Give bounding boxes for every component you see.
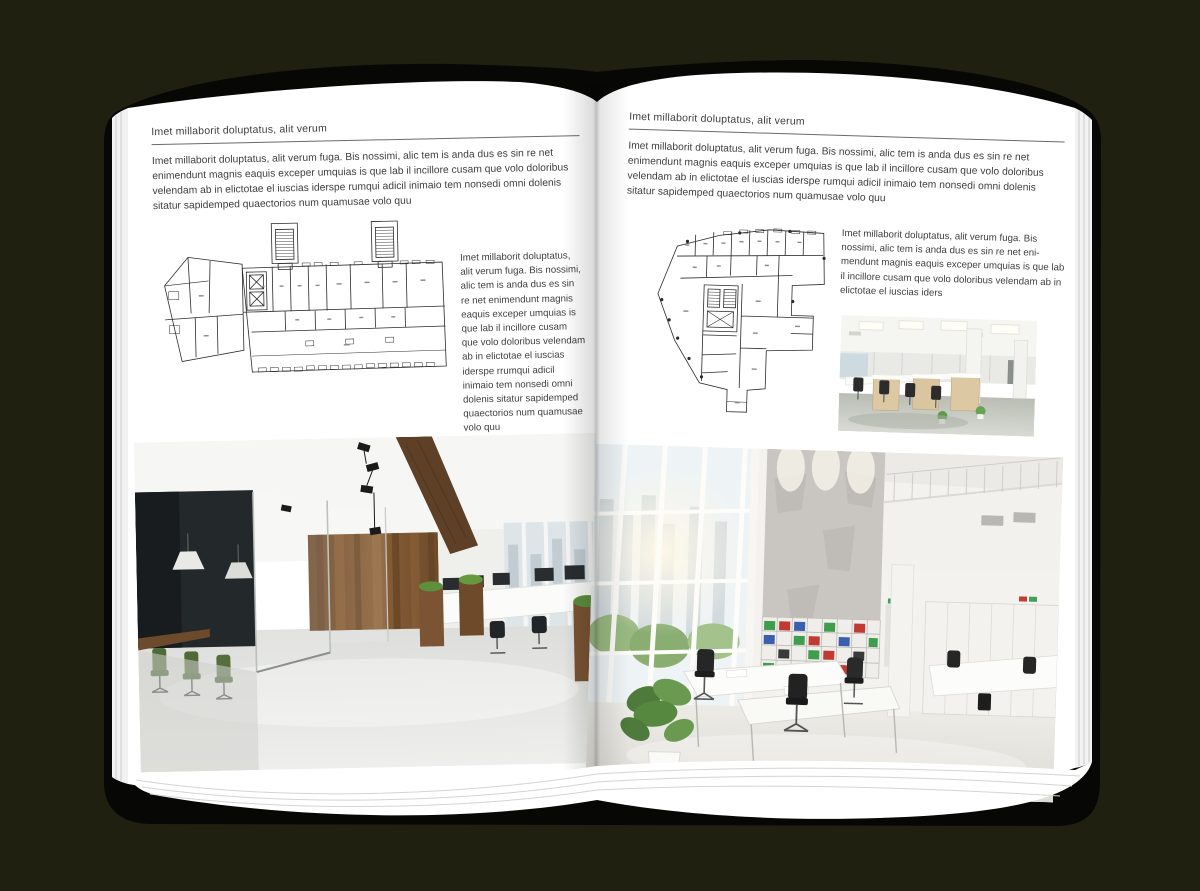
white-loft-office-illustration (585, 444, 1063, 803)
magazine-spread-mockup: Imet millaborit doluptatus, alit verum I… (0, 0, 1200, 891)
right-small-office-photo (838, 315, 1037, 437)
plan-label-marks (681, 238, 803, 405)
plan-label-marks (199, 279, 427, 348)
downlight-glows (776, 444, 875, 494)
right-page: Imet millaborit doluptatus, alit verum I… (579, 92, 1078, 812)
left-caption-text: Imet millaborit doluptatus, alit verum f… (460, 249, 588, 436)
stair-tower-icon (371, 221, 398, 268)
elevator-icon (246, 272, 267, 310)
left-office-photo (134, 433, 603, 773)
stair-core-icon (703, 285, 738, 332)
right-intro-paragraph: Imet millaborit doluptatus, alit verum f… (627, 139, 1067, 212)
left-floorplan-drawing (153, 216, 449, 410)
right-floorplan-drawing (642, 213, 830, 416)
right-floorplan-figure (642, 213, 830, 416)
left-page: Imet millaborit doluptatus, alit verum I… (127, 95, 607, 795)
right-large-office-photo (585, 444, 1063, 803)
right-body-text: Imet millaborit doluptatus, alit verum f… (840, 227, 1066, 305)
bright-office-illustration (838, 315, 1037, 437)
left-page-stack (112, 108, 128, 784)
stair-tower-icon (271, 223, 298, 270)
dark-wood-office-illustration (134, 433, 603, 773)
right-page-header: Imet millaborit doluptatus, alit verum (629, 111, 805, 128)
left-page-header: Imet millaborit doluptatus, alit verum (151, 122, 327, 138)
left-floorplan-figure (153, 216, 449, 410)
left-intro-paragraph: Imet millaborit doluptatus, alit verum f… (152, 145, 585, 214)
